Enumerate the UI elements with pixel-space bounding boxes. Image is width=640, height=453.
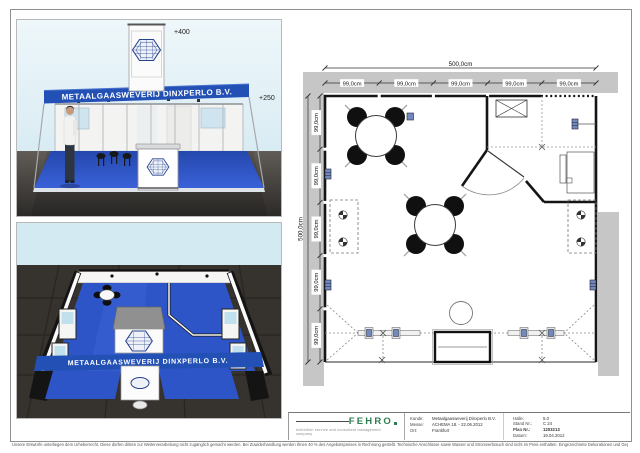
wall-socket bbox=[572, 119, 578, 129]
center-counter bbox=[113, 307, 165, 353]
front-counter bbox=[433, 330, 493, 365]
fehro-logo: FEHRO bbox=[349, 417, 393, 427]
segment-width-label: 99,0cm bbox=[559, 81, 578, 87]
wall-socket bbox=[325, 280, 331, 290]
segment-depth-label: 99,0cm bbox=[314, 219, 320, 238]
floor-socket bbox=[407, 113, 414, 120]
plan-sheet: METAALGAASWEVERIJ DINXPERLO B.V. +400 +2… bbox=[0, 0, 640, 453]
wall-socket bbox=[325, 169, 331, 179]
segment-depth-label: 99,0cm bbox=[314, 166, 320, 185]
wardrobe-cabinet bbox=[496, 100, 527, 117]
segment-depth-label: 99,0cm bbox=[314, 326, 320, 345]
fan-symbol bbox=[339, 238, 347, 246]
total-depth-label: 500,0cm bbox=[298, 217, 305, 241]
date-row: Datum: 19.04.2012 bbox=[513, 433, 630, 439]
city-row: Ort: Frankfurt bbox=[410, 428, 503, 434]
render-front-view: METAALGAASWEVERIJ DINXPERLO B.V. +400 +2… bbox=[16, 19, 282, 217]
booth-back-wall bbox=[55, 98, 243, 151]
company-tagline: exhibition service and consultant manage… bbox=[296, 428, 397, 436]
company-logo-cell: FEHRO exhibition service and consultant … bbox=[289, 413, 405, 440]
segment-width-label: 99,0cm bbox=[397, 81, 416, 87]
company-logo-oval-faint bbox=[133, 401, 147, 409]
sky-band bbox=[17, 223, 281, 265]
beam-spotlight bbox=[365, 328, 373, 339]
fan-symbol bbox=[577, 211, 585, 219]
floor-plan: 500,0cm 99,0cm 99,0cm 99,0cm 99,0cm 99,0… bbox=[296, 55, 636, 400]
company-logo-oval bbox=[131, 378, 149, 389]
fan-symbol bbox=[339, 211, 347, 219]
glass-showcase-right bbox=[201, 108, 225, 128]
top-view-graphic: METAALGAASWEVERIJ DINXPERLO B.V. bbox=[17, 223, 281, 418]
segment-width-label: 99,0cm bbox=[343, 81, 362, 87]
plan-info-cell: Halle: 5.0 Stand Nr.: C 24 Plan Nr.: 120… bbox=[504, 413, 630, 440]
logo-tower bbox=[128, 25, 166, 92]
render-top-view: METAALGAASWEVERIJ DINXPERLO B.V. bbox=[16, 222, 282, 419]
wall-socket bbox=[590, 280, 596, 290]
fehro-logo-dot bbox=[394, 422, 397, 425]
beam-spotlight bbox=[520, 328, 528, 339]
fascia-height-label: +250 bbox=[259, 95, 275, 102]
fan-symbol bbox=[577, 238, 585, 246]
footer-disclaimer: Unsere Entwürfe unterliegen dem Urheberr… bbox=[12, 442, 628, 447]
segment-width-label: 99,0cm bbox=[505, 81, 524, 87]
segment-width-label: 99,0cm bbox=[451, 81, 470, 87]
segment-depth-label: 99,0cm bbox=[314, 273, 320, 292]
beam-spotlight bbox=[547, 328, 555, 339]
total-width-label: 500,0cm bbox=[449, 61, 473, 68]
segment-depth-label: 99,0cm bbox=[314, 113, 320, 132]
title-block: FEHRO exhibition service and consultant … bbox=[288, 412, 630, 440]
info-counter bbox=[136, 144, 180, 190]
project-info-cell: Kunde: Metaalgaasweverij Dinxperlo B.V. … bbox=[405, 413, 504, 440]
light-beam-right bbox=[508, 331, 564, 336]
front-view-graphic: METAALGAASWEVERIJ DINXPERLO B.V. +400 +2… bbox=[17, 20, 281, 216]
tower-height-label: +400 bbox=[174, 29, 190, 36]
column bbox=[450, 302, 473, 325]
beam-spotlight bbox=[392, 328, 400, 339]
logo-rule bbox=[296, 421, 349, 422]
